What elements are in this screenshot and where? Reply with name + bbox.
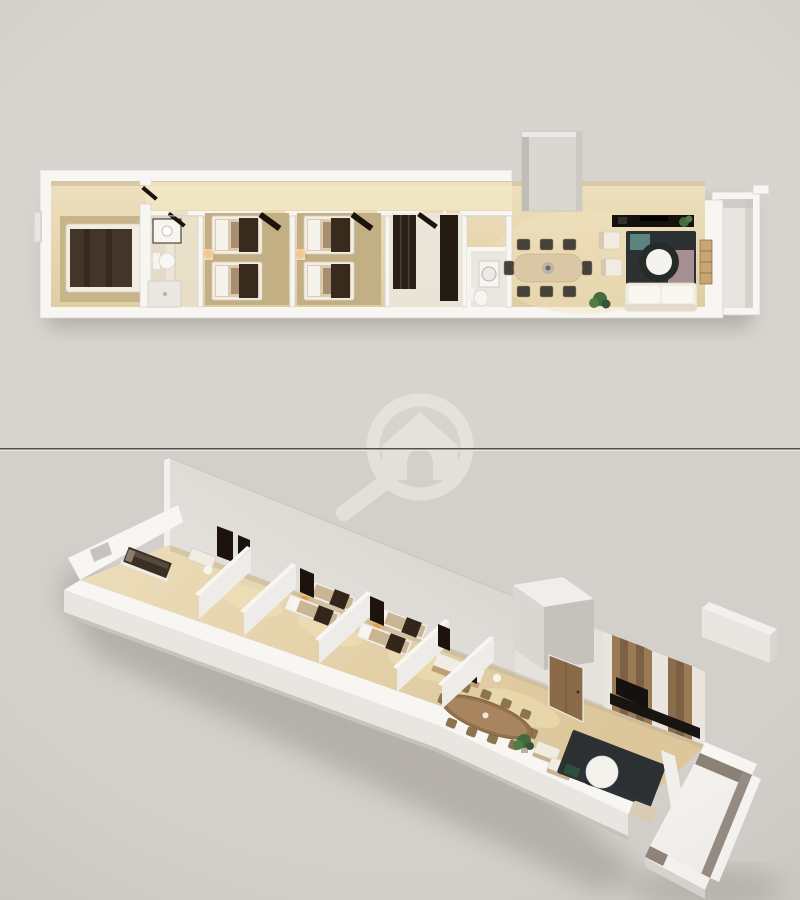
wall-bed2-bed3 [290, 216, 295, 307]
pillow [216, 220, 228, 250]
tall-dark-door [217, 526, 233, 562]
dark-wardrobe [440, 215, 458, 301]
wc-toilet-tank [468, 288, 474, 301]
room-bedroom-3 [294, 212, 381, 305]
floorplan-iso-view [0, 450, 800, 900]
sofa [625, 283, 697, 311]
iso-beige-pouf [628, 800, 658, 824]
room-bathroom [148, 211, 198, 307]
room-hall-closet [390, 212, 462, 307]
iso-toilet [204, 566, 213, 575]
wall-niche [33, 211, 42, 243]
screenshot-root [0, 0, 800, 900]
bed-runner [239, 218, 258, 252]
wall-bed3-hall [385, 216, 390, 307]
section-divider-line [0, 448, 800, 451]
wall-stub [140, 181, 151, 185]
wall-shelf [700, 240, 712, 284]
iso-wc-toilet [493, 674, 501, 682]
lamp [206, 252, 211, 257]
iso-view-panel [0, 450, 800, 900]
room-bedroom-2 [202, 212, 289, 305]
iso-utility-block [513, 577, 594, 670]
toilet [159, 253, 175, 269]
single-bed [212, 262, 262, 300]
pillow [216, 266, 228, 296]
wall-bath-bed2 [198, 216, 203, 307]
room-guest-wc [467, 247, 506, 307]
entry-vestibule-block [702, 602, 777, 663]
armchair [599, 232, 620, 249]
utility-block [522, 132, 582, 211]
floorplan-top-view [0, 0, 800, 450]
wc-toilet [474, 290, 488, 306]
single-bed [212, 216, 262, 254]
iso-round-table [586, 756, 618, 788]
corridor-floor [146, 182, 512, 210]
wall-hall-wc [462, 216, 467, 307]
coffee-table-top [646, 249, 672, 275]
top-plan-panel [0, 0, 800, 450]
armchair [601, 259, 622, 276]
bed-runner [239, 264, 258, 298]
dark-wardrobe [393, 215, 416, 289]
